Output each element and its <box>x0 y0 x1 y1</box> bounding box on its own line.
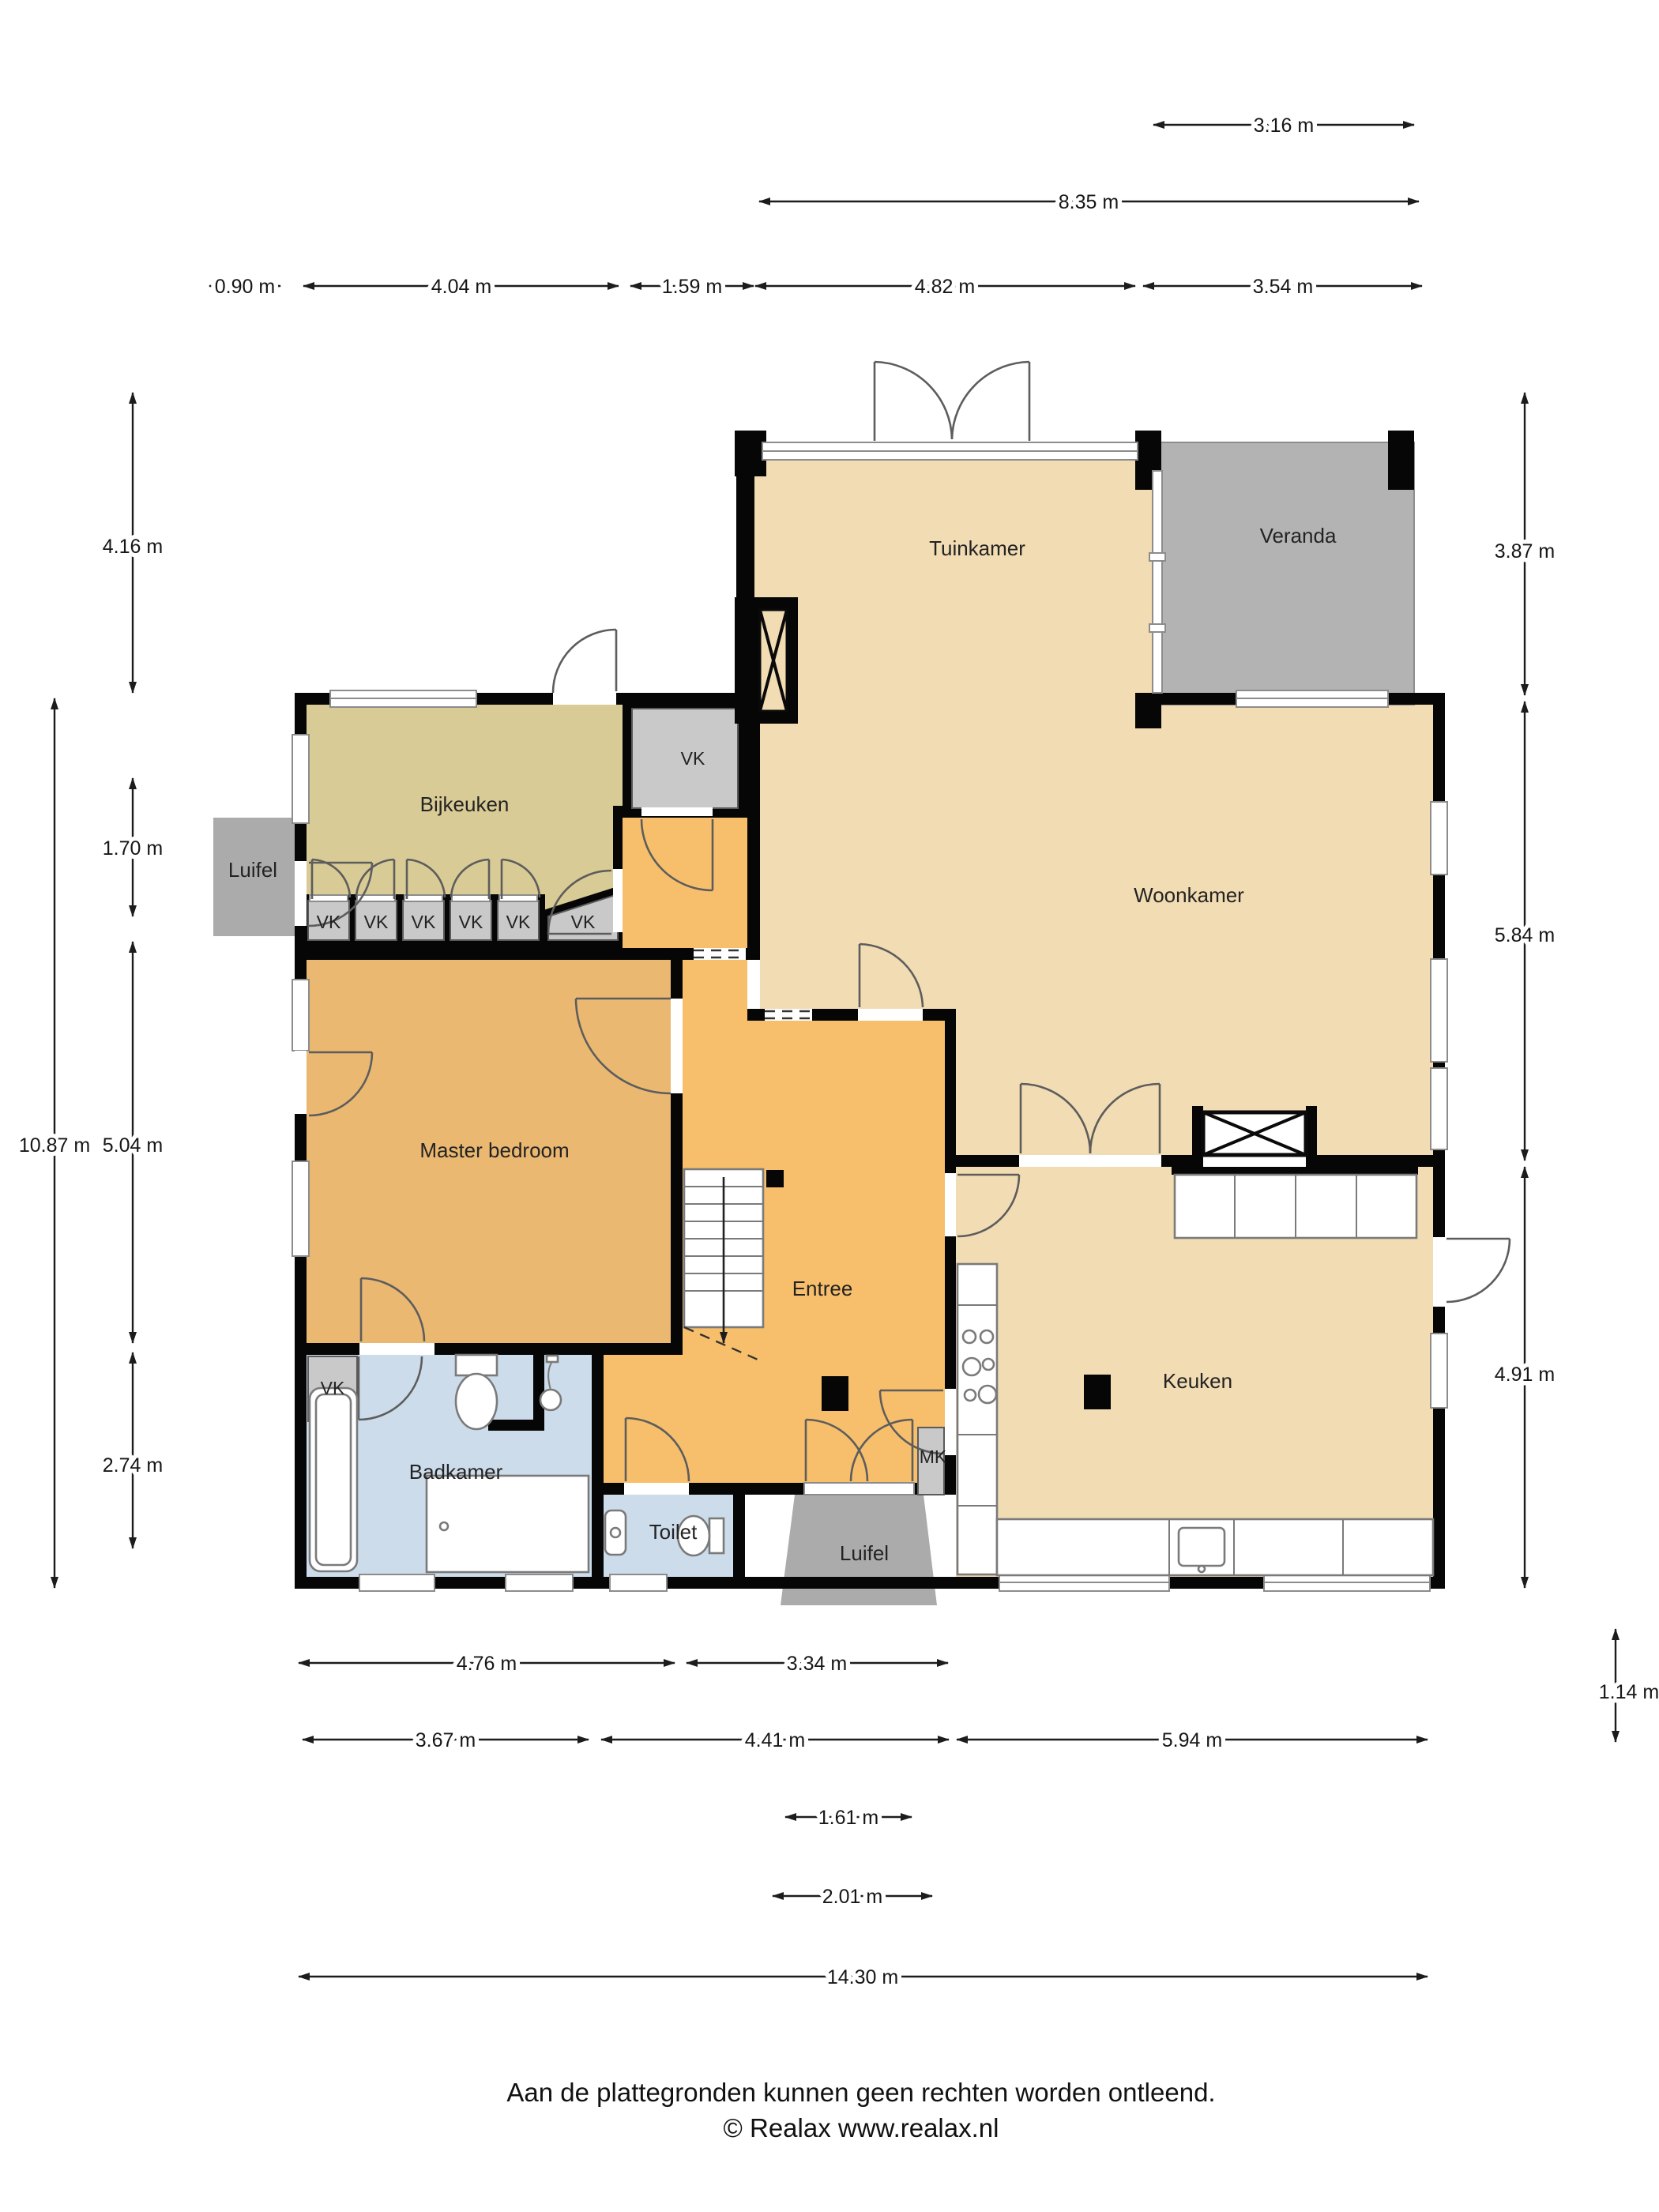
vk-main-label: VK <box>681 748 705 769</box>
window-woonkamer-right-1 <box>1431 802 1447 875</box>
dim-label-4-91: 4.91 m <box>1495 1364 1555 1386</box>
dim-label-0-90: 0.90 m <box>215 276 275 298</box>
french-door-right-arc <box>952 362 1029 439</box>
door-gap-keuken-double <box>1019 1155 1161 1167</box>
window-woonkamer-right-3 <box>1431 1068 1447 1149</box>
dim-label-14-30: 14.30 m <box>827 1966 898 1988</box>
hob-burner <box>963 1358 980 1375</box>
vk-main-door-gap <box>641 807 713 816</box>
wall-master-top <box>295 948 683 960</box>
vk-badkamer-label: VK <box>321 1378 345 1398</box>
hob-burner <box>965 1390 976 1401</box>
toilet-tank-badkamer <box>456 1355 497 1375</box>
window-tuinkamer-veranda <box>1153 471 1162 693</box>
door-gap-entree-mk <box>945 1389 956 1455</box>
hob-burner <box>979 1386 996 1403</box>
floorplan-canvas: 3.16 m 8.35 m 0.90 m 4.04 m 1.59 m 4.82 … <box>0 0 1659 2212</box>
room-floors <box>213 442 1433 1605</box>
dim-label-5-84: 5.84 m <box>1495 924 1555 946</box>
door-gap-master-left <box>295 1051 307 1114</box>
dim-label-1-59: 1.59 m <box>662 276 722 298</box>
window-woonkamer-right-2 <box>1431 959 1447 1062</box>
vk-label-4: VK <box>459 912 483 932</box>
vk-slanted-label: VK <box>571 912 596 932</box>
door-gap-keuken-left <box>945 1173 956 1236</box>
footer-copyright: © Realax www.realax.nl <box>724 2113 999 2142</box>
luifel-left-label: Luifel <box>228 858 277 882</box>
bijkeuken-label: Bijkeuken <box>420 792 510 816</box>
hob-burner <box>963 1330 976 1343</box>
door-gap-bijkeuken-top <box>553 693 616 705</box>
dim-label-4-41: 4.41 m <box>745 1729 805 1751</box>
window-toilet-bottom <box>610 1574 667 1591</box>
wall-veranda-bottom-a <box>1161 693 1236 705</box>
window-master-left-1 <box>292 980 309 1051</box>
keuken-right-door-arc <box>1446 1239 1510 1302</box>
partition-badkamer-h <box>488 1420 544 1431</box>
entree-label: Entree <box>792 1277 853 1300</box>
dim-label-4-76: 4.76 m <box>457 1653 517 1675</box>
door-gap-keuken-right <box>1433 1237 1445 1307</box>
door-gap-master-badkamer <box>359 1343 434 1355</box>
toilet-tank <box>709 1518 724 1553</box>
dim-label-2-01: 2.01 m <box>822 1886 882 1908</box>
window-badkamer-bottom-2 <box>506 1574 573 1591</box>
vanity-drain <box>440 1522 448 1530</box>
vk-threshold-5 <box>499 895 537 901</box>
window-tv-tick-2 <box>1149 624 1165 632</box>
dim-label-3-54: 3.54 m <box>1253 276 1313 298</box>
dim-label-5-94: 5.94 m <box>1162 1729 1222 1751</box>
badkamer-label: Badkamer <box>409 1460 503 1484</box>
wall-mid-vertical <box>747 699 760 960</box>
dim-label-3-67: 3.67 m <box>416 1729 476 1751</box>
column-keuken <box>1084 1375 1111 1409</box>
wall-veranda-bottom-b <box>1388 693 1435 705</box>
toilet-label: Toilet <box>649 1520 698 1544</box>
tuinkamer-label: Tuinkamer <box>929 536 1025 560</box>
vk-label-1: VK <box>317 912 341 932</box>
window-keuken-right <box>1431 1334 1447 1408</box>
dim-label-3-16: 3.16 m <box>1254 115 1314 137</box>
kitchen-sink <box>1179 1528 1224 1566</box>
dim-label-4-82: 4.82 m <box>915 276 975 298</box>
front-door-threshold <box>804 1483 914 1495</box>
tuinkamer-floor <box>754 458 1156 707</box>
veranda-label: Veranda <box>1260 524 1337 547</box>
sink-faucet <box>1198 1566 1205 1572</box>
dim-label-3-87: 3.87 m <box>1495 540 1555 562</box>
dim-label-3-34: 3.34 m <box>787 1653 847 1675</box>
veranda-floor <box>1156 442 1414 705</box>
wall-badkamer-right <box>592 1355 604 1577</box>
vk-label-2: VK <box>364 912 389 932</box>
door-gap-toilet <box>624 1483 689 1495</box>
dim-label-1-14: 1.14 m <box>1599 1681 1659 1703</box>
shower-bracket <box>547 1356 558 1362</box>
vk-label-3: VK <box>412 912 436 932</box>
shower-head <box>540 1390 561 1410</box>
window-badkamer-bottom-1 <box>359 1574 434 1591</box>
wall-toilet-right <box>733 1483 745 1589</box>
french-door-left-arc <box>875 362 952 439</box>
dim-label-2-74: 2.74 m <box>103 1454 163 1477</box>
window-bijkeuken-left <box>292 735 309 823</box>
master-bedroom-label: Master bedroom <box>419 1138 569 1162</box>
door-gap-bijkeuken-left <box>295 861 307 926</box>
bathtub-inner <box>316 1394 351 1565</box>
dim-label-4-16: 4.16 m <box>103 536 163 558</box>
luifel-front-label: Luifel <box>840 1541 889 1565</box>
wall-keuken-top <box>945 1155 1433 1167</box>
vk-threshold-4 <box>452 895 490 901</box>
wall-left-outer <box>295 693 307 1589</box>
door-gap-master-entree <box>671 999 683 1093</box>
dim-label-4-04: 4.04 m <box>431 276 491 298</box>
hob-burner <box>980 1330 993 1343</box>
woonkamer-label: Woonkamer <box>1134 883 1244 907</box>
vk-threshold-3 <box>404 895 442 901</box>
vk-threshold-1 <box>310 895 348 901</box>
post-veranda-bottomleft <box>1135 693 1161 728</box>
badkamer-vanity <box>427 1476 589 1572</box>
mk-label: MK <box>920 1446 947 1467</box>
floorplan-page: 3.16 m 8.35 m 0.90 m 4.04 m 1.59 m 4.82 … <box>0 0 1659 2212</box>
toilet-basin-drain <box>611 1528 620 1537</box>
toilet-bowl-badkamer <box>456 1374 497 1429</box>
footer-disclaimer: Aan de plattegronden kunnen geen rechten… <box>506 2078 1215 2107</box>
post-stairs <box>766 1170 784 1187</box>
dim-label-10-87: 10.87 m <box>19 1134 90 1157</box>
keuken-label: Keuken <box>1163 1369 1232 1393</box>
dim-label-5-04: 5.04 m <box>103 1134 163 1157</box>
bijkeuken-door-arc <box>553 630 616 693</box>
hob-burner <box>983 1359 994 1370</box>
dim-label-8-35: 8.35 m <box>1059 191 1119 213</box>
footer: Aan de plattegronden kunnen geen rechten… <box>506 2078 1215 2142</box>
wall-master-bottom <box>295 1343 683 1355</box>
keuken-counter-left <box>957 1264 997 1574</box>
window-tv-tick-1 <box>1149 553 1165 561</box>
vk-label-5: VK <box>506 912 531 932</box>
hall-to-toilet-floor <box>604 1355 683 1483</box>
wall-closet-band <box>1172 1167 1418 1175</box>
window-master-left-2 <box>292 1161 309 1256</box>
dim-label-1-70: 1.70 m <box>103 837 163 860</box>
post-veranda-topright <box>1388 431 1414 490</box>
dim-label-1-61: 1.61 m <box>818 1807 878 1829</box>
door-gap-woonkamer-entree <box>858 1009 923 1021</box>
column-entree <box>822 1376 848 1411</box>
door-gap-vestibule-left <box>613 869 623 932</box>
